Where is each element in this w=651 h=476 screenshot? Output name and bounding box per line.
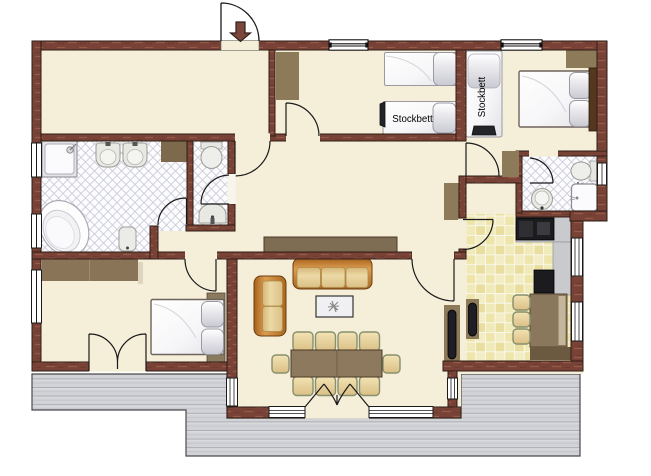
svg-text:Stockbett: Stockbett [392,114,433,125]
svg-text:Stockbett: Stockbett [477,77,488,118]
